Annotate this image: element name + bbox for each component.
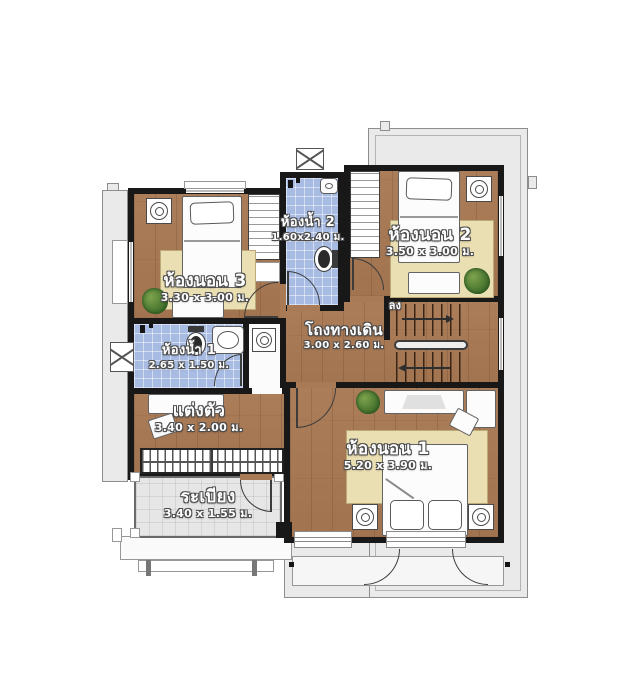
room-size-bedroom-3: 3.30 x 3.00 ม.	[140, 292, 270, 304]
door-leaf-bathroom-2	[287, 271, 289, 305]
toilet-tank-icon-2	[188, 326, 204, 332]
balcony-post-right	[252, 560, 257, 576]
balcony-corner-wall-block	[276, 522, 292, 538]
stairs-arrow-line-down	[406, 367, 450, 369]
plant-icon-2	[464, 268, 490, 294]
room-name-hallway: โถงทางเดิน	[284, 322, 404, 339]
door-leaf-bedroom-1	[296, 388, 298, 428]
pillow-icon-3	[390, 500, 424, 530]
ceiling-speaker-icon	[146, 198, 172, 224]
stairs-down-text: ลง	[380, 300, 410, 312]
room-label-bedroom-2: ห้องนอน 2 3.50 x 3.00 ม.	[364, 226, 496, 258]
deck-corner-dot-left	[289, 562, 294, 567]
room-size-bathroom-2: 1.60x2.40 ม.	[266, 232, 350, 243]
doorway-bathroom-2	[287, 305, 320, 311]
room-size-balcony: 3.40 x 1.55 ม.	[142, 508, 274, 520]
room-label-balcony: ระเบียง 3.40 x 1.55 ม.	[142, 488, 274, 520]
roof-tab-left	[107, 183, 119, 191]
room-label-bathroom-1: ห้องน้ำ 1 2.65 x 1.50 ม.	[134, 344, 244, 371]
ceiling-speaker-icon-2	[466, 176, 492, 202]
bathroom-1-fixture-mark	[140, 325, 145, 333]
balcony-post-block-3	[130, 528, 140, 538]
room-size-dressing: 3.40 x 2.00 ม.	[134, 422, 264, 434]
doorway-bedroom-2	[350, 296, 384, 302]
door-leaf-bedroom-3	[244, 316, 278, 318]
roof-vent-icon	[296, 148, 324, 170]
ceiling-speaker-icon-4	[468, 504, 494, 530]
bedroom-3-top-window	[186, 189, 244, 193]
bedroom-3-left-window-sill	[112, 240, 128, 304]
pillow-icon-2	[406, 177, 453, 201]
pillow-icon-4	[428, 500, 462, 530]
bedroom-1-window-center	[386, 531, 466, 548]
room-name-dressing: แต่งตัว	[134, 402, 264, 421]
stairwell-window	[499, 318, 503, 370]
door-leaf-bedroom-2	[352, 258, 354, 290]
sink-icon	[320, 178, 338, 194]
doorway-bedroom-3	[280, 284, 286, 318]
room-label-bedroom-3: ห้องนอน 3 3.30 x 3.00 ม.	[140, 272, 270, 304]
bedroom-2-blanket-line	[400, 216, 458, 218]
room-size-bathroom-1: 2.65 x 1.50 ม.	[134, 360, 244, 371]
tv-icon	[402, 395, 446, 409]
room-name-balcony: ระเบียง	[142, 488, 274, 507]
stairs-arrow-line-up	[402, 318, 446, 320]
room-name-bedroom-1: ห้องนอน 1	[316, 440, 460, 459]
roof-tab-top	[380, 121, 390, 131]
ceiling-speaker-icon-3	[352, 504, 378, 530]
bathroom-2-fixture-mark-2	[296, 178, 300, 183]
balcony-deck-outline	[120, 536, 292, 560]
room-size-hallway: 3.00 x 2.60 ม.	[284, 340, 404, 351]
stairs-down-label: ลง	[380, 300, 410, 312]
bathroom-2-fixture-mark	[288, 180, 293, 188]
pillow-icon	[190, 201, 235, 225]
stairs-arrow-head-left	[398, 364, 406, 372]
stairs-handrail	[394, 340, 468, 350]
dressing-wardrobe-divider	[211, 450, 213, 472]
plant-icon-3	[356, 390, 380, 414]
room-name-bathroom-2: ห้องน้ำ 2	[266, 216, 350, 231]
room-size-bedroom-2: 3.50 x 3.00 ม.	[364, 246, 496, 258]
bedroom-3-top-window-sill	[184, 181, 246, 189]
deck-corner-dot-right	[505, 562, 510, 567]
balcony-corner-block	[112, 528, 122, 542]
bathroom-1-window-icon	[110, 342, 134, 372]
room-label-hallway: โถงทางเดิน 3.00 x 2.60 ม.	[284, 322, 404, 351]
room-name-bathroom-1: ห้องน้ำ 1	[134, 344, 244, 359]
room-label-bathroom-2: ห้องน้ำ 2 1.60x2.40 ม.	[266, 216, 350, 243]
bedroom-2-bench	[408, 272, 460, 294]
floor-plan: ห้องนอน 3 3.30 x 3.00 ม. ห้องน้ำ 2 1.60x…	[0, 0, 634, 696]
bedroom-3-blanket-line	[184, 240, 240, 242]
toilet-icon	[314, 246, 334, 272]
doorway-dressing	[252, 388, 282, 394]
roof-tab-right	[528, 176, 537, 189]
bedroom-1-window-left	[294, 531, 352, 548]
stairs-arrow-head-right	[446, 315, 454, 323]
bathroom-1-fixture-mark-2	[149, 323, 153, 328]
room-name-bedroom-2: ห้องนอน 2	[364, 226, 496, 245]
downlight-icon	[252, 328, 276, 352]
balcony-post-block-1	[130, 472, 140, 482]
balcony-post-left	[146, 560, 151, 576]
room-label-bedroom-1: ห้องนอน 1 5.20 x 3.90 ม.	[316, 440, 460, 472]
room-name-bedroom-3: ห้องนอน 3	[140, 272, 270, 291]
room-label-dressing: แต่งตัว 3.40 x 2.00 ม.	[134, 402, 264, 434]
roof-overhang-left	[102, 190, 128, 482]
bedroom-3-left-window	[129, 242, 133, 302]
room-size-bedroom-1: 5.20 x 3.90 ม.	[316, 460, 460, 472]
toilet-tank-icon	[332, 250, 338, 268]
bedroom-2-right-window	[499, 196, 503, 256]
